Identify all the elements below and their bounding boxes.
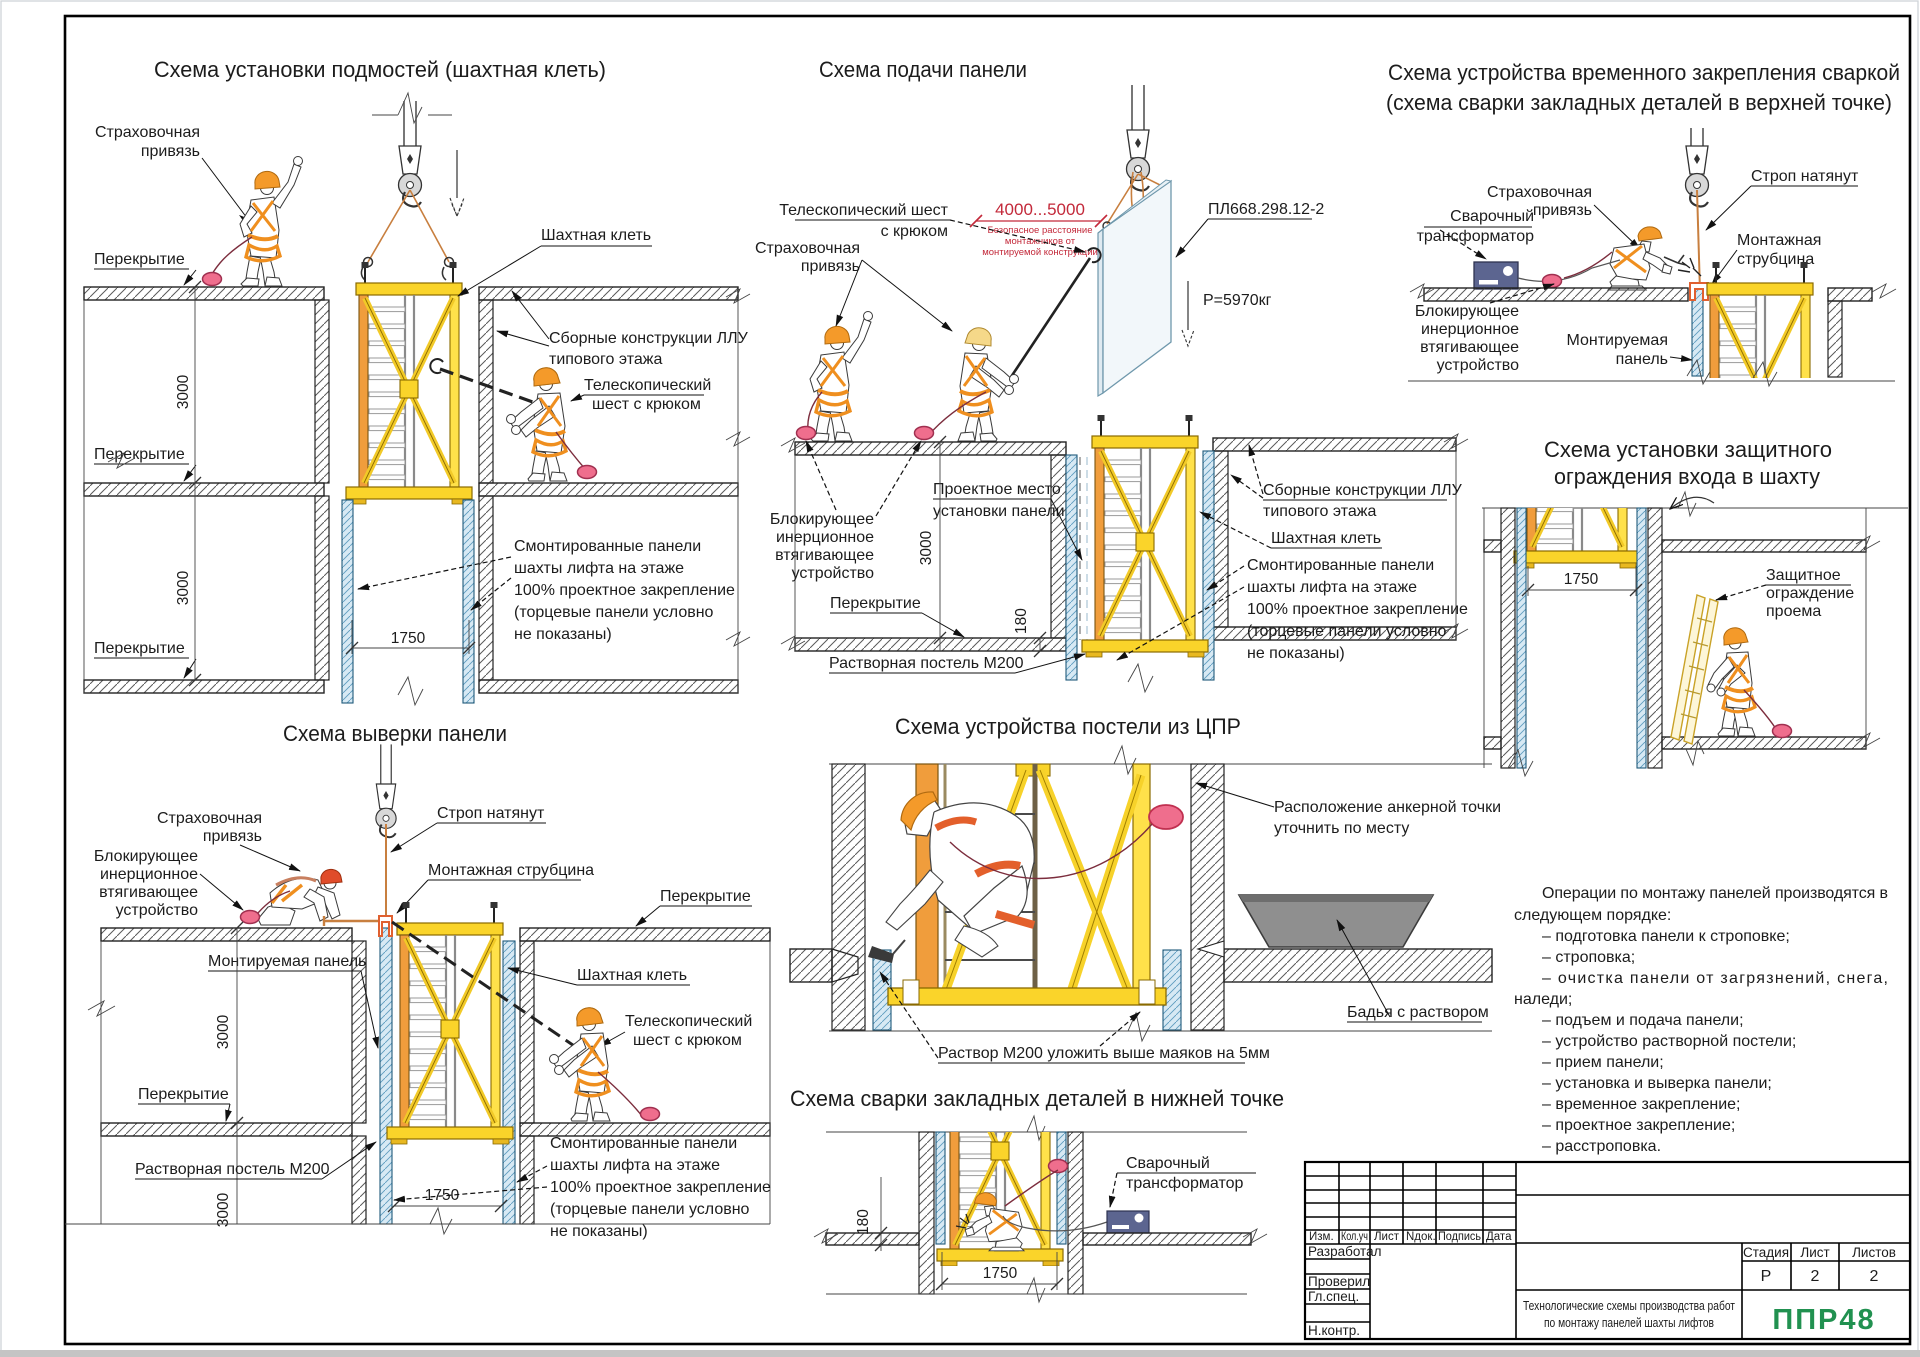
svg-text:Подпись: Подпись	[1438, 1231, 1481, 1243]
svg-text:Схема устройства постели из ЦП: Схема устройства постели из ЦПР	[895, 714, 1241, 739]
svg-text:Смонтированные панели: Смонтированные панели	[1247, 557, 1434, 574]
svg-text:Схема выверки панели: Схема выверки панели	[283, 721, 507, 746]
svg-text:привязь: привязь	[141, 143, 200, 160]
svg-text:инерционное: инерционное	[776, 529, 874, 546]
svg-text:Страховочная: Страховочная	[755, 240, 860, 257]
svg-text:Р=5970кг: Р=5970кг	[1203, 292, 1272, 309]
svg-text:Технологические схемы производ: Технологические схемы производства работ	[1523, 1298, 1735, 1313]
svg-text:Расположение анкерной точки: Расположение анкерной точки	[1274, 799, 1501, 816]
svg-text:3000: 3000	[175, 374, 192, 409]
svg-text:Шахтная клеть: Шахтная клеть	[577, 967, 687, 984]
svg-text:Растворная постель М200: Растворная постель М200	[829, 655, 1024, 672]
svg-text:Защитное: Защитное	[1766, 567, 1841, 584]
svg-text:Строп натянут: Строп натянут	[437, 805, 545, 822]
svg-text:втягивающее: втягивающее	[99, 884, 198, 901]
svg-text:Разработал: Разработал	[1308, 1244, 1381, 1259]
svg-text:Монтируемая: Монтируемая	[1566, 332, 1668, 349]
svg-text:уточнить по месту: уточнить по месту	[1274, 820, 1409, 837]
svg-text:шест с крюком: шест с крюком	[592, 396, 701, 413]
svg-text:шахты лифта на этаже: шахты лифта на этаже	[514, 560, 684, 577]
svg-text:Шахтная клеть: Шахтная клеть	[541, 227, 651, 244]
svg-text:Лист: Лист	[1800, 1245, 1829, 1260]
svg-text:устройство: устройство	[792, 565, 875, 582]
svg-text:Схема установки подмостей (шах: Схема установки подмостей (шахтная клеть…	[154, 57, 606, 82]
svg-text:3000: 3000	[918, 530, 935, 565]
svg-text:Блокирующее: Блокирующее	[1415, 303, 1519, 320]
svg-text:ограждения входа в шахту: ограждения входа в шахту	[1554, 464, 1820, 489]
svg-text:1750: 1750	[391, 630, 426, 647]
svg-text:Схема устройства временного за: Схема устройства временного закрепления …	[1388, 60, 1900, 85]
svg-text:Проектное место: Проектное место	[933, 481, 1061, 498]
svg-text:Монтажная струбцина: Монтажная струбцина	[428, 862, 594, 879]
svg-text:Бадья с раствором: Бадья с раствором	[1347, 1004, 1489, 1021]
svg-text:2: 2	[1811, 1268, 1820, 1285]
svg-text:– строповка;: – строповка;	[1542, 949, 1635, 966]
svg-text:180: 180	[855, 1209, 872, 1235]
svg-text:– установка и выверка панели;: – установка и выверка панели;	[1542, 1075, 1772, 1092]
svg-text:Сварочный: Сварочный	[1126, 1155, 1210, 1172]
svg-text:устройство: устройство	[116, 902, 199, 919]
svg-text:Раствор М200 уложить выше маяк: Раствор М200 уложить выше маяков на 5мм	[938, 1045, 1270, 1062]
svg-text:ППР48: ППР48	[1772, 1304, 1875, 1336]
svg-text:привязь: привязь	[1533, 202, 1592, 219]
svg-text:Изм.: Изм.	[1309, 1231, 1334, 1243]
svg-text:Страховочная: Страховочная	[95, 124, 200, 141]
svg-text:Операции по монтажу панелей пр: Операции по монтажу панелей производятся…	[1542, 885, 1888, 902]
svg-text:– очистка панели от загрязнени: – очистка панели от загрязнений, снега,	[1542, 970, 1888, 987]
svg-text:– прием панели;: – прием панели;	[1542, 1054, 1664, 1071]
svg-text:Монтажная: Монтажная	[1737, 232, 1821, 249]
svg-text:инерционное: инерционное	[100, 866, 198, 883]
svg-text:– проектное закрепление;: – проектное закрепление;	[1542, 1117, 1735, 1134]
svg-text:(торцевые панели условно: (торцевые панели условно	[550, 1201, 750, 1218]
svg-text:1750: 1750	[983, 1265, 1018, 1282]
svg-text:шест с крюком: шест с крюком	[633, 1032, 742, 1049]
svg-text:100% проектное закрепление: 100% проектное закрепление	[1247, 601, 1468, 618]
svg-text:– устройство растворной постел: – устройство растворной постели;	[1542, 1033, 1796, 1050]
svg-text:трансформатор: трансформатор	[1126, 1175, 1244, 1192]
svg-text:с крюком: с крюком	[881, 223, 948, 240]
svg-text:Смонтированные панели: Смонтированные панели	[514, 538, 701, 555]
svg-text:Н.контр.: Н.контр.	[1308, 1323, 1360, 1338]
svg-text:– подъем и подача панели;: – подъем и подача панели;	[1542, 1012, 1744, 1029]
svg-text:не показаны): не показаны)	[514, 626, 612, 643]
svg-text:ПЛ668.298.12-2: ПЛ668.298.12-2	[1208, 201, 1324, 218]
svg-text:втягивающее: втягивающее	[1420, 339, 1519, 356]
svg-text:Схема сварки закладных деталей: Схема сварки закладных деталей в нижней …	[790, 1086, 1284, 1111]
svg-text:Телескопический: Телескопический	[625, 1013, 752, 1030]
svg-text:(торцевые панели условно: (торцевые панели условно	[514, 604, 714, 621]
svg-text:3000: 3000	[215, 1014, 232, 1049]
svg-text:не показаны): не показаны)	[1247, 645, 1345, 662]
svg-text:1750: 1750	[1564, 571, 1599, 588]
svg-text:Nдок.: Nдок.	[1406, 1231, 1436, 1243]
svg-text:Перекрытие: Перекрытие	[94, 251, 185, 268]
svg-text:Стадия: Стадия	[1743, 1245, 1789, 1260]
svg-text:Блокирующее: Блокирующее	[770, 511, 874, 528]
svg-text:100% проектное закрепление: 100% проектное закрепление	[514, 582, 735, 599]
svg-text:наледи;: наледи;	[1514, 991, 1572, 1008]
svg-text:шахты лифта на этаже: шахты лифта на этаже	[1247, 579, 1417, 596]
svg-text:– расстроповка.: – расстроповка.	[1542, 1138, 1661, 1155]
svg-text:проема: проема	[1766, 603, 1821, 620]
svg-text:устройство: устройство	[1437, 357, 1520, 374]
svg-text:Перекрытие: Перекрытие	[94, 640, 185, 657]
svg-text:Монтируемая панель: Монтируемая панель	[208, 953, 366, 970]
svg-text:Растворная постель М200: Растворная постель М200	[135, 1161, 330, 1178]
svg-text:Перекрытие: Перекрытие	[660, 888, 751, 905]
svg-text:Телескопический шест: Телескопический шест	[779, 202, 948, 219]
svg-text:Схема установки защитного: Схема установки защитного	[1544, 437, 1832, 462]
svg-text:Безопасное расстояние: Безопасное расстояние	[987, 225, 1092, 236]
svg-text:привязь: привязь	[203, 828, 262, 845]
svg-text:по монтажу панелей шахты лифто: по монтажу панелей шахты лифтов	[1544, 1315, 1714, 1330]
svg-text:– временное закрепление;: – временное закрепление;	[1542, 1096, 1741, 1113]
svg-text:Строп натянут: Строп натянут	[1751, 168, 1859, 185]
svg-text:180: 180	[1013, 608, 1030, 634]
svg-text:Сборные конструкции ЛЛУ: Сборные конструкции ЛЛУ	[1263, 482, 1463, 499]
svg-text:Страховочная: Страховочная	[157, 810, 262, 827]
svg-text:шахты лифта на этаже: шахты лифта на этаже	[550, 1157, 720, 1174]
svg-text:Проверил: Проверил	[1308, 1274, 1370, 1289]
svg-text:монтируемой конструкции: монтируемой конструкции	[982, 247, 1098, 258]
svg-text:3000: 3000	[175, 570, 192, 605]
svg-text:типового этажа: типового этажа	[1263, 503, 1376, 520]
svg-text:Лист: Лист	[1374, 1231, 1400, 1243]
svg-text:установки панели: установки панели	[933, 503, 1065, 520]
svg-text:Смонтированные панели: Смонтированные панели	[550, 1135, 737, 1152]
svg-text:3000: 3000	[215, 1192, 232, 1227]
svg-text:4000...5000: 4000...5000	[995, 200, 1085, 219]
svg-text:трансформатор: трансформатор	[1417, 228, 1535, 245]
svg-text:панель: панель	[1616, 351, 1668, 368]
svg-text:следующем порядке:: следующем порядке:	[1514, 907, 1671, 924]
svg-text:не показаны): не показаны)	[550, 1223, 648, 1240]
svg-text:привязь: привязь	[801, 258, 860, 275]
svg-text:Перекрытие: Перекрытие	[138, 1086, 229, 1103]
svg-text:– подготовка панели к строповк: – подготовка панели к строповке;	[1542, 928, 1790, 945]
svg-text:Листов: Листов	[1852, 1245, 1896, 1260]
svg-text:(схема сварки закладных детале: (схема сварки закладных деталей в верхне…	[1386, 90, 1892, 115]
svg-text:втягивающее: втягивающее	[775, 547, 874, 564]
svg-text:Страховочная: Страховочная	[1487, 184, 1592, 201]
svg-text:Сборные конструкции ЛЛУ: Сборные конструкции ЛЛУ	[549, 330, 749, 347]
svg-text:Дата: Дата	[1486, 1231, 1512, 1243]
svg-text:Перекрытие: Перекрытие	[94, 446, 185, 463]
svg-text:Блокирующее: Блокирующее	[94, 848, 198, 865]
svg-text:Р: Р	[1761, 1268, 1772, 1285]
svg-text:Гл.спец.: Гл.спец.	[1308, 1289, 1359, 1304]
svg-text:ограждение: ограждение	[1766, 585, 1854, 602]
svg-text:Сварочный: Сварочный	[1450, 208, 1534, 225]
svg-text:Телескопический: Телескопический	[584, 377, 711, 394]
svg-text:2: 2	[1870, 1268, 1879, 1285]
svg-text:типового этажа: типового этажа	[549, 351, 662, 368]
svg-text:Схема подачи панели: Схема подачи панели	[819, 57, 1027, 82]
svg-text:инерционное: инерционное	[1421, 321, 1519, 338]
svg-text:Шахтная клеть: Шахтная клеть	[1271, 530, 1381, 547]
svg-text:Перекрытие: Перекрытие	[830, 595, 921, 612]
svg-text:(торцевые панели условно: (торцевые панели условно	[1247, 623, 1447, 640]
svg-text:Кол.уч: Кол.уч	[1341, 1231, 1368, 1243]
svg-text:100% проектное закрепление: 100% проектное закрепление	[550, 1179, 771, 1196]
